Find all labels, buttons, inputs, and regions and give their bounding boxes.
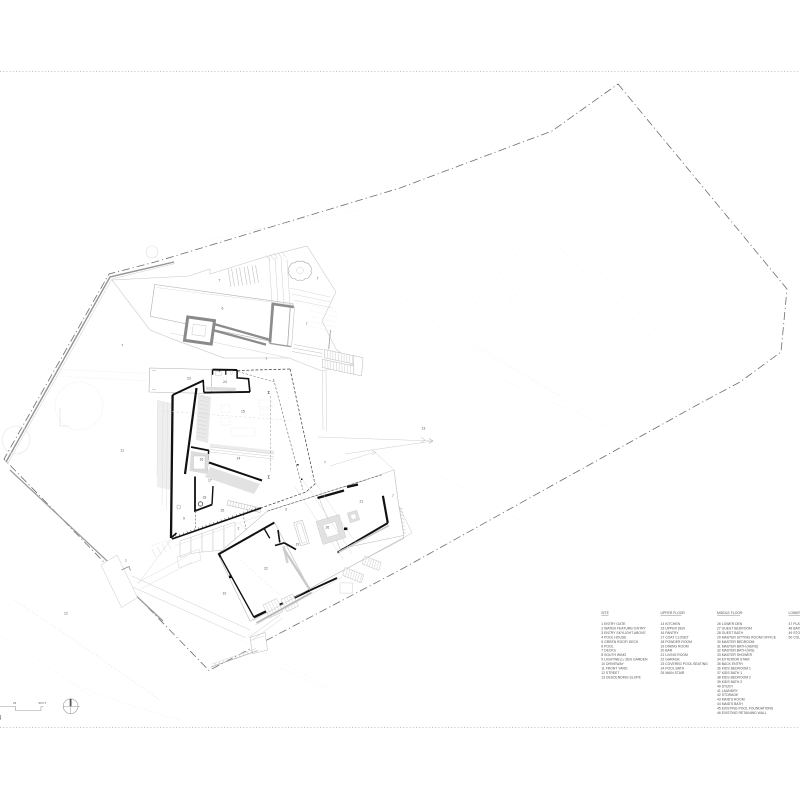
svg-text:43 MAID'S ROOM: 43 MAID'S ROOM: [717, 698, 745, 702]
svg-text:32 MASTER BATH (HIS): 32 MASTER BATH (HIS): [717, 649, 754, 653]
svg-text:3: 3: [285, 508, 287, 512]
svg-text:10: 10: [223, 592, 227, 596]
svg-text:33 MASTER SHOWER: 33 MASTER SHOWER: [717, 653, 753, 657]
svg-text:6: 6: [222, 307, 224, 311]
svg-text:21 LIVING ROOM: 21 LIVING ROOM: [661, 653, 688, 657]
svg-text:36 KIDS BEDROOM 1: 36 KIDS BEDROOM 1: [717, 667, 751, 671]
svg-text:13 DESCENDING SLOPE: 13 DESCENDING SLOPE: [601, 675, 641, 679]
svg-text:16 PANTRY: 16 PANTRY: [661, 631, 680, 635]
svg-text:14 KITCHEN: 14 KITCHEN: [661, 622, 681, 626]
svg-text:21: 21: [360, 500, 364, 504]
svg-text:23 COVERED POOL SEATING: 23 COVERED POOL SEATING: [661, 662, 709, 666]
svg-text:AN: AN: [0, 716, 1, 722]
svg-text:13: 13: [422, 427, 426, 431]
svg-text:20 BAR: 20 BAR: [661, 649, 673, 653]
svg-text:9 LIGHTWELL/ ZEN GARDEN: 9 LIGHTWELL/ ZEN GARDEN: [601, 658, 648, 662]
svg-text:35 BACK ENTRY: 35 BACK ENTRY: [717, 662, 744, 666]
svg-text:9: 9: [183, 517, 185, 521]
svg-text:18: 18: [203, 496, 207, 500]
svg-text:7: 7: [265, 357, 267, 361]
svg-text:28 GUEST BATH: 28 GUEST BATH: [717, 631, 744, 635]
svg-text:31 MASTER BATH (HERS): 31 MASTER BATH (HERS): [717, 644, 758, 648]
svg-text:50 FT: 50 FT: [39, 701, 47, 705]
svg-text:7: 7: [317, 277, 319, 281]
svg-text:24 POOL BATH: 24 POOL BATH: [661, 667, 685, 671]
svg-text:41 LAUNDRY: 41 LAUNDRY: [717, 689, 739, 693]
svg-text:45 EXISTING POOL FOUNDATIONS: 45 EXISTING POOL FOUNDATIONS: [717, 707, 774, 711]
svg-text:26: 26: [326, 526, 330, 530]
svg-text:46 EXISTING RETAINING WALL: 46 EXISTING RETAINING WALL: [717, 711, 767, 715]
svg-text:42 STORAGE: 42 STORAGE: [717, 693, 739, 697]
svg-text:3 ENTRY SKYLIGHT ABOVE: 3 ENTRY SKYLIGHT ABOVE: [601, 631, 646, 635]
svg-text:15: 15: [241, 410, 245, 414]
svg-text:14: 14: [237, 457, 241, 461]
svg-text:10 DRIVEWAY: 10 DRIVEWAY: [601, 662, 624, 666]
svg-text:2 WATER FEATURE/ ENTRY: 2 WATER FEATURE/ ENTRY: [601, 626, 646, 630]
svg-text:49 STORAGE: 49 STORAGE: [789, 631, 800, 635]
svg-text:24: 24: [223, 380, 227, 384]
svg-text:23: 23: [187, 377, 191, 381]
svg-text:MIDDLE FLOOR: MIDDLE FLOOR: [717, 611, 743, 615]
svg-text:38 KIDS BEDROOM 2: 38 KIDS BEDROOM 2: [717, 675, 751, 679]
svg-text:7: 7: [324, 461, 326, 465]
svg-text:7: 7: [392, 494, 394, 498]
svg-text:25: 25: [221, 509, 225, 513]
svg-text:12: 12: [64, 612, 68, 616]
svg-text:12 STREET: 12 STREET: [601, 671, 619, 675]
svg-text:26 LOWER DEN: 26 LOWER DEN: [717, 622, 743, 626]
svg-text:7: 7: [121, 344, 123, 348]
svg-text:40 STUDY: 40 STUDY: [717, 684, 734, 688]
svg-text:11: 11: [121, 449, 125, 453]
svg-text:22 GARAGE: 22 GARAGE: [661, 658, 681, 662]
svg-text:27 GUEST BEDROOM: 27 GUEST BEDROOM: [717, 626, 752, 630]
svg-text:4 POOL HOUSE: 4 POOL HOUSE: [601, 635, 627, 639]
svg-text:39 KIDS BATH 2: 39 KIDS BATH 2: [717, 680, 742, 684]
svg-text:8 SOUTH WING: 8 SOUTH WING: [601, 653, 626, 657]
svg-text:29 MASTER SITTING ROOM/ OFFICE: 29 MASTER SITTING ROOM/ OFFICE: [717, 635, 777, 639]
svg-text:25: 25: [13, 701, 17, 705]
svg-text:7 DECKS: 7 DECKS: [601, 649, 616, 653]
svg-text:SITE: SITE: [601, 611, 609, 615]
svg-text:7: 7: [306, 322, 308, 326]
svg-text:7: 7: [219, 279, 221, 283]
svg-text:50 COLD STORAGE: 50 COLD STORAGE: [789, 635, 800, 639]
svg-text:UPPER FLOOR: UPPER FLOOR: [661, 611, 686, 615]
svg-text:34 EXTERIOR STAIR: 34 EXTERIOR STAIR: [717, 658, 750, 662]
svg-text:LOWER FLOOR: LOWER FLOOR: [789, 611, 800, 615]
svg-text:48 BATH: 48 BATH: [789, 626, 800, 630]
svg-text:25 MAIN STAIR: 25 MAIN STAIR: [661, 671, 685, 675]
svg-text:17 COAT CLOSET: 17 COAT CLOSET: [661, 635, 689, 639]
svg-text:15 UPPER DEN: 15 UPPER DEN: [661, 626, 686, 630]
svg-text:18 POWDER ROOM: 18 POWDER ROOM: [661, 640, 693, 644]
svg-text:22: 22: [264, 567, 268, 571]
svg-text:47 PLAYROOM: 47 PLAYROOM: [789, 622, 800, 626]
svg-text:44 MAID'S BATH: 44 MAID'S BATH: [717, 702, 743, 706]
svg-text:2: 2: [238, 527, 240, 531]
svg-text:30 MASTER BEDROOM: 30 MASTER BEDROOM: [717, 640, 754, 644]
svg-text:6 POOL: 6 POOL: [601, 644, 613, 648]
svg-text:17: 17: [208, 479, 212, 483]
svg-text:19: 19: [296, 543, 300, 547]
svg-text:16: 16: [200, 458, 204, 462]
svg-text:1: 1: [125, 559, 127, 563]
svg-text:37 KIDS BATH 1: 37 KIDS BATH 1: [717, 671, 742, 675]
svg-text:5 GREEN ROOF/ DECK: 5 GREEN ROOF/ DECK: [601, 640, 639, 644]
svg-text:1 ENTRY GATE: 1 ENTRY GATE: [601, 622, 626, 626]
svg-text:19 DINING ROOM: 19 DINING ROOM: [661, 644, 689, 648]
svg-text:11 FRONT YARD: 11 FRONT YARD: [601, 667, 628, 671]
